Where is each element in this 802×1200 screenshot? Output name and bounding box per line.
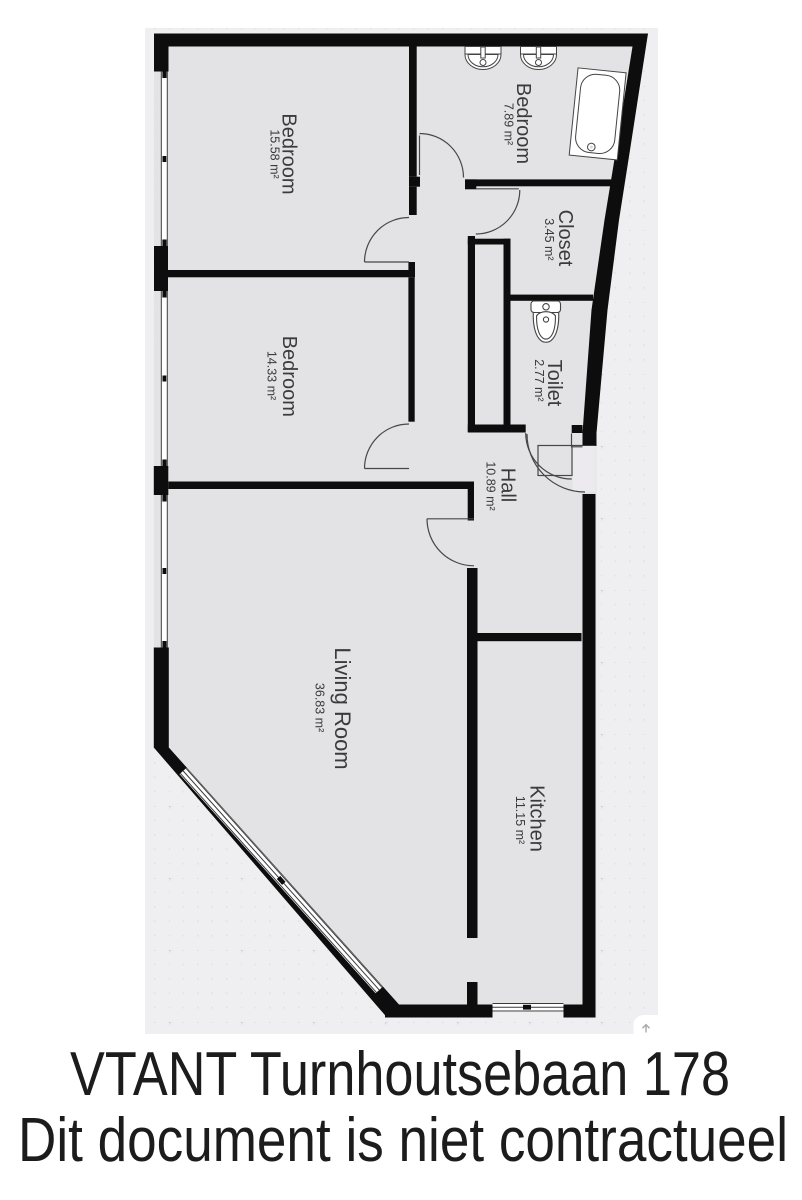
svg-text:11.15 m²: 11.15 m² bbox=[513, 796, 527, 844]
svg-text:Dit document is niet contractu: Dit document is niet contractueel bbox=[18, 1106, 788, 1175]
svg-text:36.83 m²: 36.83 m² bbox=[313, 683, 327, 732]
svg-text:Kitchen: Kitchen bbox=[526, 785, 548, 852]
svg-text:VTANT Turnhoutsebaan 178: VTANT Turnhoutsebaan 178 bbox=[70, 1040, 730, 1109]
svg-text:15.58 m²: 15.58 m² bbox=[268, 129, 282, 178]
svg-text:Living Room: Living Room bbox=[330, 647, 355, 769]
svg-text:Bedroom: Bedroom bbox=[278, 336, 300, 417]
svg-text:7.89 m²: 7.89 m² bbox=[502, 103, 516, 145]
svg-text:Hall: Hall bbox=[496, 468, 518, 502]
svg-text:14.33 m²: 14.33 m² bbox=[265, 351, 279, 400]
svg-text:10.89 m²: 10.89 m² bbox=[484, 461, 498, 510]
svg-text:3.45 m²: 3.45 m² bbox=[542, 218, 556, 260]
svg-text:2.77 m²: 2.77 m² bbox=[532, 359, 546, 401]
svg-text:Closet: Closet bbox=[554, 210, 576, 267]
